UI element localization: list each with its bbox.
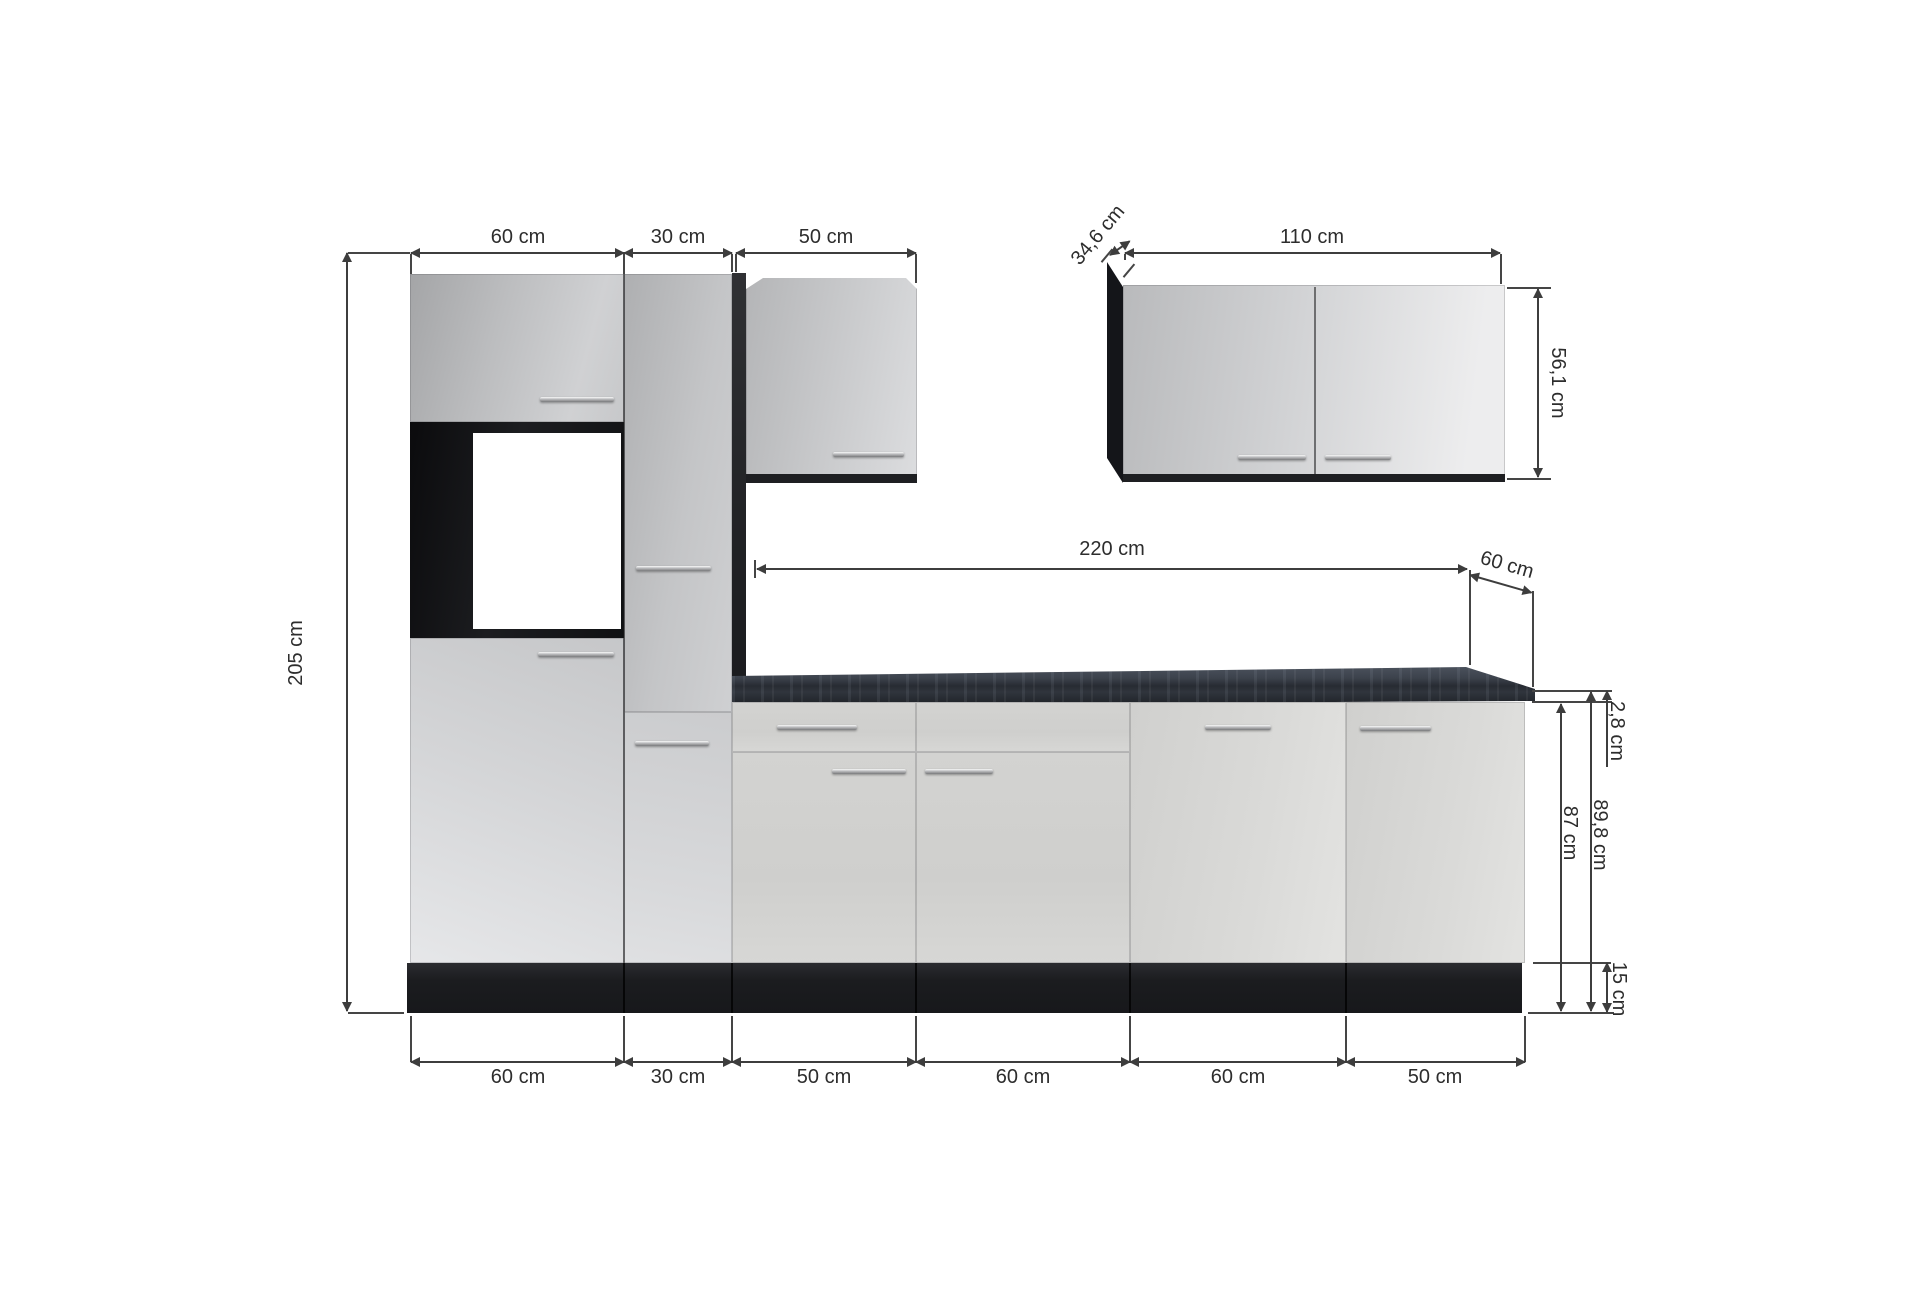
wall-cabinet-110-bottom-edge xyxy=(1123,474,1505,482)
extension-line xyxy=(915,1016,917,1062)
extension-line xyxy=(1532,701,1612,703)
extension-line xyxy=(1507,478,1551,480)
wall-cabinet-50-bottom-edge xyxy=(746,474,917,483)
plinth-seam xyxy=(1345,963,1347,1013)
cabinet-seam xyxy=(623,274,625,963)
pantry-side-panel xyxy=(732,273,746,676)
dim-label-top-50: 50 cm xyxy=(776,226,876,248)
extension-line xyxy=(1345,1016,1347,1062)
dim-label-bottom-5: 60 cm xyxy=(1188,1066,1288,1088)
dim-label-bottom-4: 60 cm xyxy=(973,1066,1073,1088)
door-handle xyxy=(1238,455,1306,460)
dim-label-bottom-1: 60 cm xyxy=(468,1066,568,1088)
plinth-seam xyxy=(1129,963,1131,1013)
extension-line xyxy=(1123,264,1135,278)
extension-line xyxy=(1532,690,1612,692)
oven-niche-cutout xyxy=(473,433,621,629)
extension-line xyxy=(1129,1016,1131,1062)
wall-cabinet-110 xyxy=(1123,285,1505,482)
extension-line xyxy=(1524,1016,1526,1062)
drawer-handle xyxy=(777,725,857,730)
base-door-50-right xyxy=(1346,702,1525,963)
dim-label-plinth-height: 15 cm xyxy=(1608,939,1630,1039)
plinth-seam xyxy=(915,963,917,1013)
countertop xyxy=(732,664,1535,706)
dim-label-height: 205 cm xyxy=(285,603,307,703)
plinth xyxy=(407,963,1522,1013)
oven-cabinet-lower-door xyxy=(410,638,624,963)
base-drawer-60 xyxy=(916,702,1130,752)
extension-line xyxy=(1469,570,1471,665)
kitchen-dimension-diagram: 205 cm 60 cm 30 cm 50 cm 110 cm 34,6 cm … xyxy=(0,0,1920,1307)
extension-line xyxy=(623,1016,625,1062)
dimension-line xyxy=(757,568,1467,570)
plinth-seam xyxy=(731,963,733,1013)
dim-label-total-height: 89,8 cm xyxy=(1589,785,1611,885)
door-handle xyxy=(832,769,906,774)
pantry-cabinet-lower-door xyxy=(624,712,732,963)
dimension-line xyxy=(624,252,732,254)
dim-label-wall-height: 56,1 cm xyxy=(1547,333,1569,433)
pantry-cabinet-upper-door xyxy=(624,274,732,712)
door-handle xyxy=(1325,455,1391,460)
dimension-line xyxy=(1537,289,1539,477)
dim-label-base-height: 87 cm xyxy=(1559,783,1581,883)
dim-label-counter-length: 220 cm xyxy=(1032,538,1192,560)
plinth-seam xyxy=(623,963,625,1013)
extension-line xyxy=(915,254,917,283)
extension-line xyxy=(1533,962,1611,964)
door-handle xyxy=(540,397,614,402)
dimension-line xyxy=(411,1061,624,1063)
extension-line xyxy=(735,254,737,272)
door-handle xyxy=(1205,725,1271,730)
dimension-line xyxy=(736,252,916,254)
dimension-line xyxy=(732,1061,916,1063)
dim-label-top-30: 30 cm xyxy=(628,226,728,248)
extension-line xyxy=(731,1016,733,1062)
door-handle xyxy=(538,652,614,657)
extension-line xyxy=(348,1012,404,1014)
extension-line xyxy=(731,254,733,272)
dim-label-bottom-2: 30 cm xyxy=(628,1066,728,1088)
door-handle xyxy=(925,769,993,774)
base-door-60 xyxy=(916,752,1130,963)
dim-label-counter-thickness: 2,8 cm xyxy=(1606,681,1628,781)
door-handle xyxy=(833,452,904,457)
door-handle xyxy=(635,741,709,746)
extension-line xyxy=(623,254,625,274)
dimension-line xyxy=(624,1061,732,1063)
dimension-line xyxy=(1125,252,1500,254)
base-door-50 xyxy=(732,752,916,963)
extension-line xyxy=(1124,254,1126,260)
dimension-line xyxy=(1346,1061,1525,1063)
door-handle xyxy=(636,566,711,571)
extension-line xyxy=(1532,591,1534,687)
dimension-line xyxy=(916,1061,1130,1063)
dim-label-wall-width: 110 cm xyxy=(1252,226,1372,248)
door-handle xyxy=(1360,726,1431,731)
extension-line xyxy=(410,254,412,274)
extension-line xyxy=(1507,287,1551,289)
extension-line xyxy=(348,252,410,254)
dimension-line xyxy=(1130,1061,1346,1063)
dim-label-bottom-3: 50 cm xyxy=(774,1066,874,1088)
extension-line xyxy=(410,1016,412,1062)
extension-line xyxy=(754,560,756,578)
dim-label-top-60: 60 cm xyxy=(468,226,568,248)
wall-cabinet-110-side-panel xyxy=(1107,258,1123,483)
dim-label-bottom-6: 50 cm xyxy=(1385,1066,1485,1088)
cabinet-seam xyxy=(1314,287,1316,474)
base-door-60-right xyxy=(1130,702,1346,963)
dimension-line xyxy=(346,253,348,1011)
dim-label-wall-depth: 34,6 cm xyxy=(1051,182,1145,288)
extension-line xyxy=(1500,254,1502,284)
dimension-line xyxy=(411,252,624,254)
